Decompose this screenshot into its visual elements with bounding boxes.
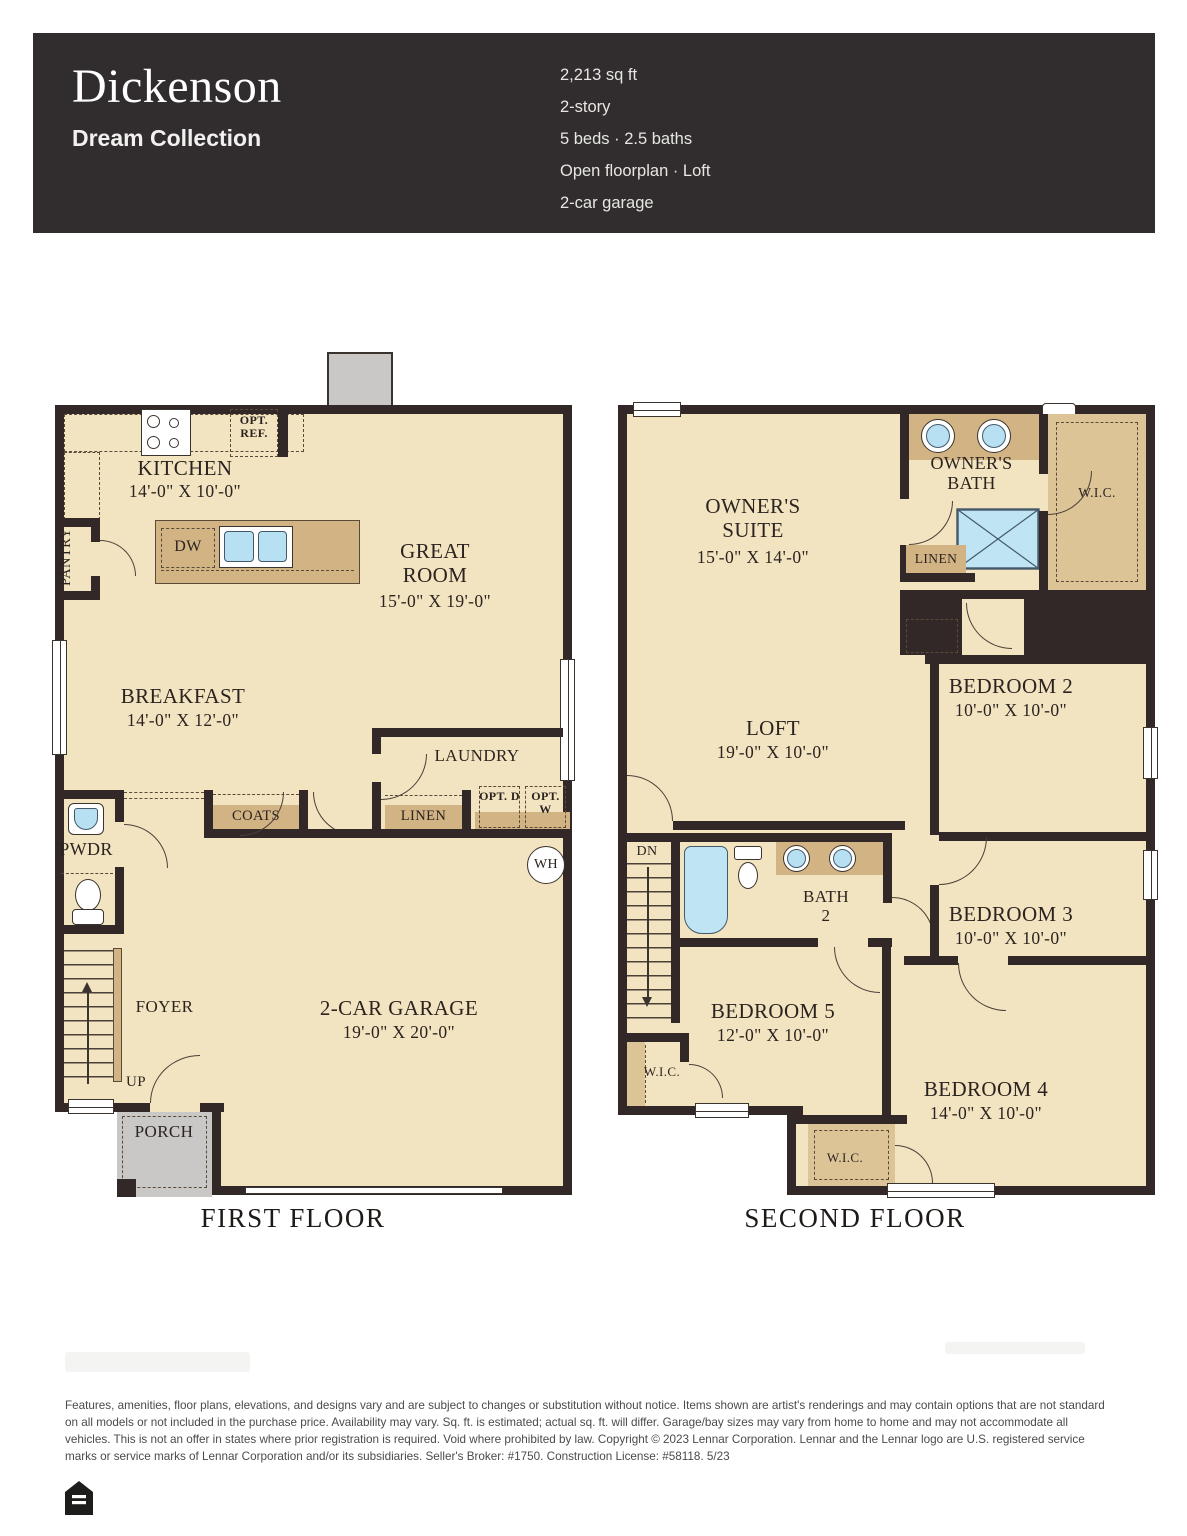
- wall: [1039, 414, 1048, 474]
- bedroom4-dims: 14'-0" X 10'-0": [886, 1104, 1086, 1124]
- spec-stories: 2-story: [560, 98, 710, 117]
- loft-dims: 19'-0" X 10'-0": [683, 743, 863, 763]
- stairs-arrow-line: [647, 867, 649, 999]
- toilet-icon: [75, 879, 101, 911]
- bedroom2-label: BEDROOM 2: [911, 675, 1111, 699]
- second-floor-plan: OWNER'S SUITE 15'-0" X 14'-0" OWNER'S BA…: [618, 405, 1155, 1200]
- closet-door: [385, 795, 462, 796]
- burner-icon: [169, 418, 179, 428]
- wall: [115, 799, 124, 822]
- tub-icon: [684, 846, 728, 934]
- wall: [372, 728, 381, 754]
- owners-suite-label: OWNER'S SUITE: [673, 495, 833, 542]
- wall: [212, 1103, 221, 1195]
- exterior-notch: [618, 1115, 787, 1200]
- window: [52, 640, 67, 755]
- chimney: [327, 352, 393, 408]
- bedroom5-label: BEDROOM 5: [678, 1000, 868, 1024]
- garage-label: 2-CAR GARAGE: [289, 997, 509, 1021]
- floorplan-sheet: { "header": { "title": "Dickenson", "col…: [0, 0, 1187, 1536]
- wall: [883, 842, 892, 903]
- wall: [680, 1042, 689, 1062]
- collection-name: Dream Collection: [72, 125, 261, 152]
- garage-door: [245, 1187, 503, 1194]
- sink-basin: [224, 531, 254, 562]
- garage-dims: 19'-0" X 20'-0": [299, 1023, 499, 1043]
- first-floor-plan: OPT. REF. DW PANTRY KITCHEN 14'-0" X 10'…: [55, 352, 572, 1197]
- owners-suite-dims: 15'-0" X 14'-0": [663, 548, 843, 568]
- shower-icon: [956, 508, 1040, 570]
- cased-opening: [124, 798, 204, 799]
- wic5-label: W.I.C.: [634, 1065, 690, 1080]
- spec-features: Open floorplan · Loft: [560, 162, 710, 181]
- up-label: UP: [119, 1074, 153, 1091]
- spec-sqft: 2,213 sq ft: [560, 66, 710, 85]
- plan-title: Dickenson: [72, 59, 282, 114]
- wall: [91, 518, 100, 542]
- dn-label: DN: [622, 844, 672, 860]
- bedroom2-dims: 10'-0" X 10'-0": [911, 701, 1111, 721]
- bedroom5-dims: 12'-0" X 10'-0": [678, 1026, 868, 1046]
- owners-bath-label: OWNER'S BATH: [905, 453, 1038, 493]
- wall: [900, 590, 1155, 599]
- wall: [680, 833, 892, 842]
- great-room-dims: 15'-0" X 19'-0": [360, 592, 510, 612]
- wall: [1146, 405, 1155, 1195]
- island-edge: [161, 570, 354, 571]
- dishwasher-label: DW: [161, 528, 215, 566]
- divider: [61, 873, 113, 874]
- breakfast-dims: 14'-0" X 12'-0": [83, 711, 283, 731]
- wall: [618, 833, 680, 842]
- first-floor-title: FIRST FLOOR: [153, 1203, 433, 1234]
- loft-label: LOFT: [698, 717, 848, 741]
- element: [72, 1501, 86, 1504]
- window: [560, 659, 575, 781]
- faint-watermark: [945, 1342, 1085, 1354]
- bath2-label: BATH 2: [800, 887, 852, 925]
- wall: [618, 405, 627, 1115]
- foyer-label: FOYER: [117, 997, 212, 1016]
- burner-icon: [147, 415, 160, 428]
- spec-list: 2,213 sq ft 2-story 5 beds · 2.5 baths O…: [560, 66, 710, 226]
- stairs-down-arrow: [642, 997, 652, 1007]
- burner-icon: [169, 438, 179, 448]
- bedroom3-label: BEDROOM 3: [911, 903, 1111, 927]
- window: [1143, 727, 1158, 779]
- wall: [673, 821, 905, 830]
- bedroom4-label: BEDROOM 4: [886, 1078, 1086, 1102]
- window: [633, 402, 681, 417]
- toilet-tank: [734, 846, 762, 860]
- sink-basin: [258, 531, 287, 562]
- wall: [278, 405, 288, 457]
- linen-label: LINEN: [385, 808, 462, 824]
- faint-watermark: [65, 1352, 250, 1372]
- toilet-icon: [738, 862, 758, 889]
- wall: [900, 573, 975, 582]
- sink-basin: [787, 849, 806, 868]
- porch-label: PORCH: [118, 1122, 210, 1141]
- wall: [91, 576, 100, 600]
- element: [65, 1511, 93, 1515]
- laundry-label: LAUNDRY: [397, 746, 557, 765]
- wall: [115, 867, 124, 925]
- opt-ref-label: OPT. REF.: [231, 414, 277, 441]
- breakfast-label: BREAKFAST: [83, 685, 283, 709]
- wall-mass: [1024, 599, 1155, 655]
- wall: [680, 938, 818, 947]
- burner-icon: [147, 436, 160, 449]
- element: [72, 1495, 86, 1498]
- window: [695, 1103, 749, 1118]
- stairs-up-arrow: [82, 982, 92, 992]
- wall: [1008, 956, 1155, 965]
- sink-basin: [982, 424, 1006, 448]
- sink-basin: [833, 849, 852, 868]
- linen2-label: LINEN: [906, 551, 966, 566]
- wall: [618, 1033, 689, 1042]
- wall: [372, 728, 563, 737]
- window: [1143, 850, 1158, 900]
- stair-wall: [671, 842, 680, 1023]
- second-floor-title: SECOND FLOOR: [695, 1203, 1015, 1234]
- great-room-label: GREAT ROOM: [380, 540, 490, 587]
- wall: [55, 405, 64, 1112]
- wic4-label: W.I.C.: [810, 1151, 880, 1166]
- pwdr-label: PWDR: [55, 839, 117, 859]
- water-heater: WH: [527, 846, 565, 884]
- wall: [55, 405, 572, 414]
- opt-d-label: OPT. D: [479, 790, 520, 803]
- window: [887, 1183, 995, 1198]
- spec-beds-baths: 5 beds · 2.5 baths: [560, 130, 710, 149]
- wall: [55, 925, 124, 934]
- equal-housing-logo: [64, 1480, 94, 1516]
- cased-opening: [124, 792, 204, 793]
- wall: [308, 829, 572, 838]
- bedroom3-dims: 10'-0" X 10'-0": [911, 929, 1111, 949]
- porch-post: [117, 1179, 136, 1197]
- kitchen-label: KITCHEN: [85, 457, 285, 481]
- pantry-label: PANTRY: [58, 524, 82, 590]
- wall: [55, 790, 124, 799]
- legal-disclaimer: Features, amenities, floor plans, elevat…: [65, 1398, 1113, 1466]
- spec-garage: 2-car garage: [560, 194, 710, 213]
- wall: [925, 655, 1155, 664]
- toilet-base: [72, 909, 104, 925]
- header-band: Dickenson Dream Collection 2,213 sq ft 2…: [33, 33, 1155, 233]
- wall: [1039, 511, 1048, 590]
- kitchen-dims: 14'-0" X 10'-0": [85, 482, 285, 502]
- opt-w-label: OPT. W: [525, 790, 566, 817]
- wall: [904, 956, 958, 965]
- window: [68, 1099, 114, 1114]
- sink-basin: [926, 424, 950, 448]
- exterior-notch: [55, 1112, 117, 1197]
- hall-closet: [906, 619, 958, 653]
- stairs-arrow-line: [87, 992, 89, 1084]
